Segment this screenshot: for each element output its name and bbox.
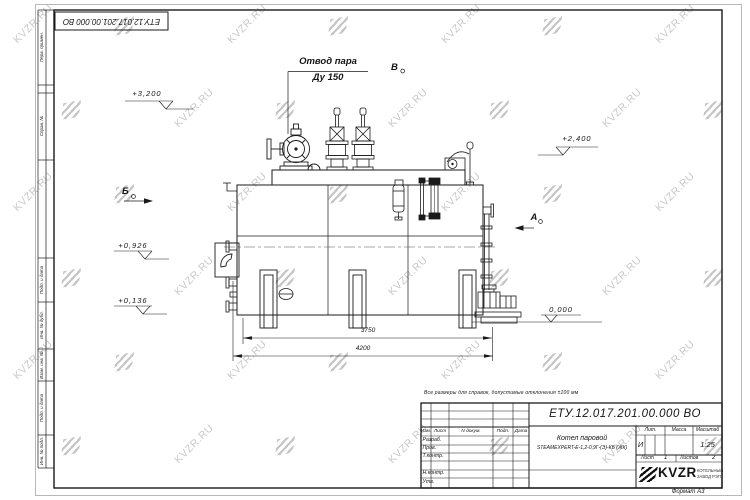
row-tkontr: Т.контр. <box>423 454 444 460</box>
deck-dome <box>308 164 320 170</box>
row-prov: Пров. <box>423 446 437 452</box>
format-label: Формат А3 <box>672 489 705 496</box>
elevation-marks <box>114 101 602 322</box>
safety-valve-1 <box>326 108 348 170</box>
elevation-label-3200: +3,200 <box>132 90 161 98</box>
sheets-value: 2 <box>712 455 715 462</box>
row-nkontr: Н.контр. <box>423 471 445 477</box>
scale-value: 1:25 <box>700 441 715 449</box>
row-utv: Утв. <box>423 480 435 486</box>
col-list: Лист <box>434 429 446 434</box>
boiler-body <box>224 185 497 315</box>
section-mark-v <box>401 69 405 73</box>
level-gauge <box>393 180 404 220</box>
col-data: Дата <box>515 429 528 434</box>
sheet-edge <box>36 5 742 496</box>
leader-label-line2: Ду 150 <box>313 73 344 83</box>
row-razrab: Разраб. <box>423 438 442 444</box>
lever-safety-valve <box>445 142 474 185</box>
elevation-label-2400: +2,400 <box>562 135 591 143</box>
frame-label-inv-podl: Инв. № подл. <box>38 426 46 476</box>
title-doc-number: ЕТУ.12.017.201.00.000 ВО <box>549 408 701 421</box>
stamp-number: ЕТУ.12.017.201.00.000 ВО <box>56 13 167 29</box>
frame-label-sprav: Справ. № <box>38 101 46 151</box>
burner-port <box>215 243 239 277</box>
sheet-value: 1 <box>664 455 667 462</box>
sheet-label: Лист <box>641 456 654 462</box>
steam-outlet-valve <box>267 124 312 170</box>
sight-glass <box>279 289 293 300</box>
frame-label-podp1: Подп. и дата <box>38 255 46 305</box>
section-label-a: А <box>531 213 538 223</box>
brand-sub1: КОТЕЛЬНЫЙ <box>697 469 723 474</box>
section-label-v: В <box>391 63 398 73</box>
elevation-label-0000: 0,000 <box>549 306 573 314</box>
left-fittings <box>223 183 237 312</box>
drawing-canvas <box>0 0 750 500</box>
annotation-lines <box>114 69 602 361</box>
product-name-line2: STEAMEXPERT-Е-1,2-0,9Г-(Э)-КБ (ЖК) <box>537 446 627 452</box>
elevation-label-0926: +0,926 <box>118 242 147 250</box>
dim-label-3750: 3750 <box>361 327 375 334</box>
brand-sub2: ЗАВОД РЭП <box>697 475 721 480</box>
elevation-label-0136: +0,136 <box>118 297 147 305</box>
col-izm: Изм. <box>421 429 431 434</box>
reference-note: Все размеры для справок, допустимые откл… <box>424 391 578 397</box>
scale-label: Масштаб <box>696 428 719 434</box>
dim-label-4200: 4200 <box>356 345 370 352</box>
section-arrow-a <box>515 220 543 231</box>
lit-value: И <box>638 441 643 449</box>
safety-valve-2 <box>352 108 374 170</box>
brand-name: KVZR <box>658 466 697 481</box>
leader-label-line1: Отвод пара <box>299 57 357 67</box>
sheets-label: Листов <box>680 456 698 462</box>
drawing-sheet: KVZR.RUKVZR.RUKVZR.RUKVZR.RUKVZR.RUKVZR.… <box>0 0 750 500</box>
support-legs <box>260 270 476 328</box>
mass-label: Масса <box>672 428 687 434</box>
col-podp: Подп. <box>497 429 510 434</box>
section-label-b: Б <box>122 187 129 197</box>
frame-label-perv: Перв. примен. <box>38 22 46 72</box>
feed-pump <box>475 285 521 323</box>
lit-label: Лит. <box>645 428 657 434</box>
product-name-line1: Котел паровой <box>557 435 607 443</box>
col-dokum: N докум. <box>461 429 480 434</box>
boiler-drawing <box>215 108 521 328</box>
water-level-indicator <box>419 178 440 220</box>
